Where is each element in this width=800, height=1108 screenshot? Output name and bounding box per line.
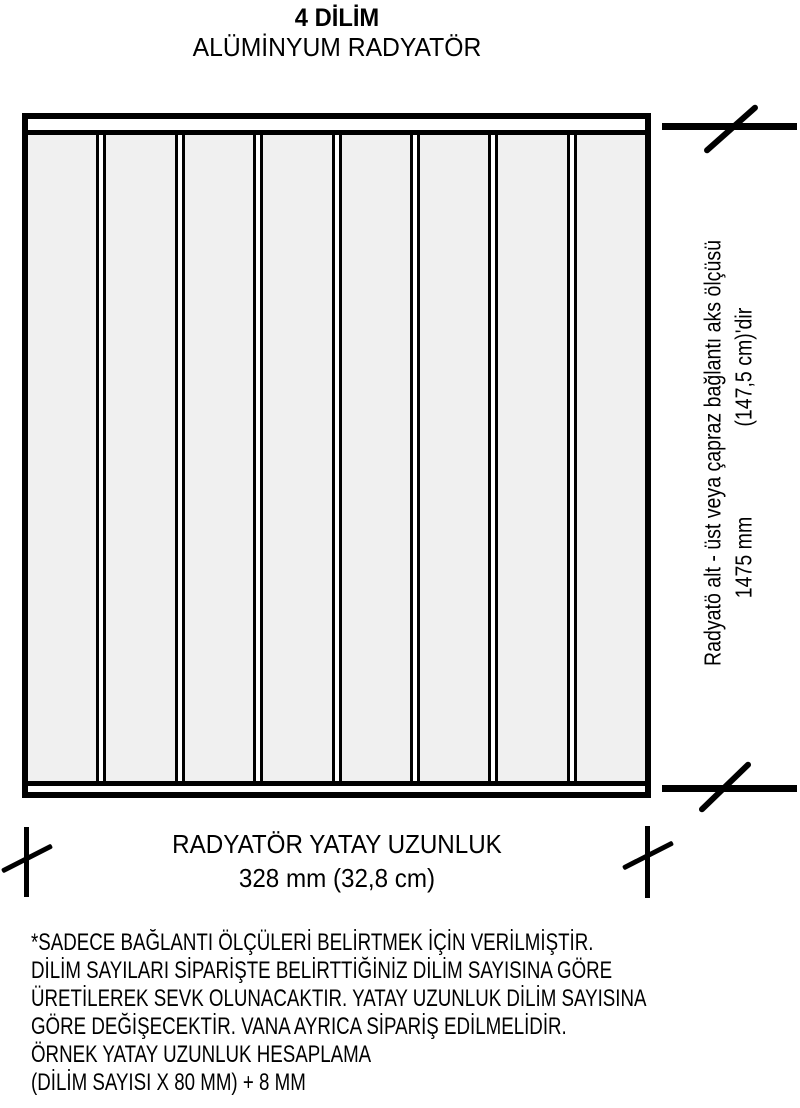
vertical-dimension-value-cm: (147,5 cm)'dir <box>729 308 760 427</box>
horizontal-dimension-label: RADYATÖR YATAY UZUNLUK <box>44 827 630 861</box>
radiator-fin <box>28 135 99 781</box>
vertical-dimension-value-mm: 1475 mm <box>729 517 760 598</box>
title-section-count: 4 DİLİM <box>24 3 651 33</box>
horizontal-dimension-value: 328 mm (32,8 cm) <box>44 861 630 895</box>
note-line: *SADECE BAĞLANTI ÖLÇÜLERİ BELİRTMEK İÇİN… <box>31 929 702 957</box>
page: 4 DİLİM ALÜMİNYUM RADYATÖR Radyatö alt -… <box>0 0 800 1108</box>
radiator-fins <box>28 135 645 781</box>
note-line: GÖRE DEĞİŞECEKTİR. VANA AYRICA SİPARİŞ E… <box>31 1013 702 1041</box>
radiator-top-manifold <box>28 119 645 135</box>
radiator-fin <box>103 135 177 781</box>
radiator-diagram <box>22 113 651 798</box>
vertical-dimension-text: Radyatö alt - üst veya çapraz bağlantı a… <box>698 213 762 693</box>
horizontal-dimension-text: RADYATÖR YATAY UZUNLUK 328 mm (32,8 cm) <box>22 827 652 895</box>
note-line: ÜRETİLEREK SEVK OLUNACAKTIR. YATAY UZUNL… <box>31 985 702 1013</box>
page-title: 4 DİLİM ALÜMİNYUM RADYATÖR <box>7 3 667 62</box>
title-product-name: ALÜMİNYUM RADYATÖR <box>24 33 651 62</box>
radiator-fin <box>417 135 491 781</box>
vertical-dimension-values: 1475 mm (147,5 cm)'dir <box>729 213 760 693</box>
radiator-fin <box>574 135 645 781</box>
note-line: ÖRNEK YATAY UZUNLUK HESAPLAMA <box>31 1041 702 1069</box>
note-line: (DİLİM SAYISI X 80 MM) + 8 MM <box>31 1069 702 1097</box>
radiator-fin <box>495 135 569 781</box>
radiator-fin <box>182 135 256 781</box>
vertical-dimension-label: Radyatö alt - üst veya çapraz bağlantı a… <box>698 213 729 693</box>
radiator-bottom-manifold <box>28 781 645 792</box>
radiator-fin <box>339 135 413 781</box>
radiator-fin <box>260 135 334 781</box>
notes-paragraph: *SADECE BAĞLANTI ÖLÇÜLERİ BELİRTMEK İÇİN… <box>31 929 702 1097</box>
note-line: DİLİM SAYILARI SİPARİŞTE BELİRTTİĞİNİZ D… <box>31 957 702 985</box>
